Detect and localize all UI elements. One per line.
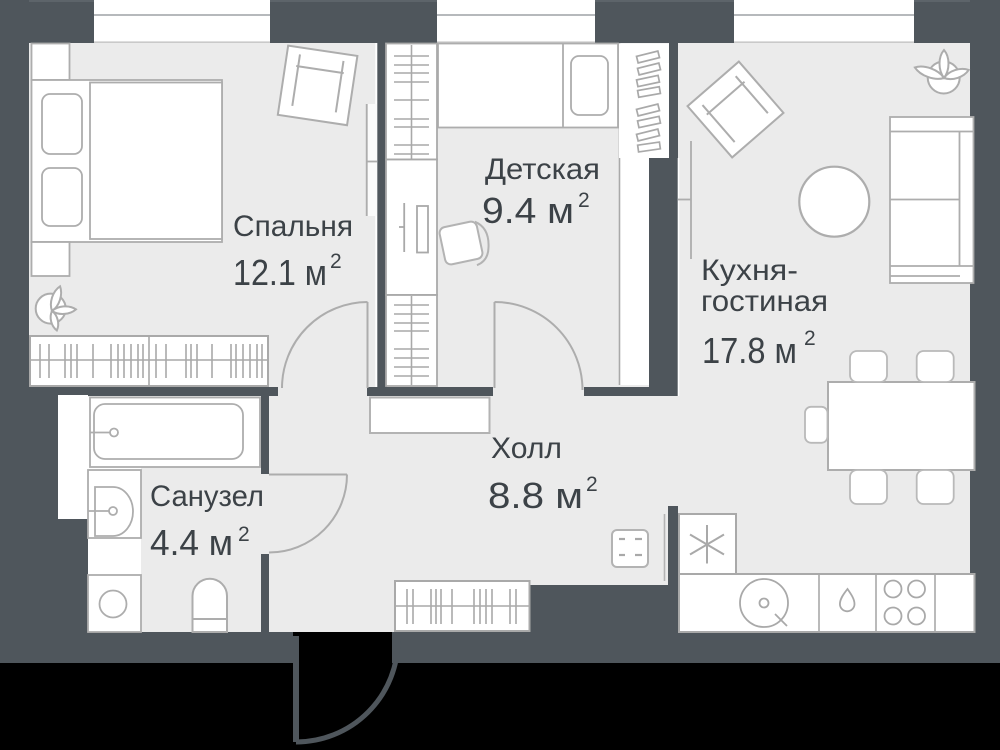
svg-text:2: 2 [238, 523, 250, 546]
svg-text:Детская: Детская [485, 153, 600, 186]
svg-text:9.4 м: 9.4 м [482, 190, 574, 231]
svg-text:2: 2 [578, 189, 590, 212]
svg-text:Холл: Холл [491, 432, 562, 465]
svg-text:8.8 м: 8.8 м [488, 475, 583, 516]
svg-text:17.8 м: 17.8 м [702, 330, 797, 371]
svg-text:гостиная: гостиная [701, 285, 828, 318]
svg-text:Кухня-: Кухня- [701, 254, 798, 287]
svg-text:2: 2 [586, 473, 598, 496]
svg-text:2: 2 [330, 250, 342, 273]
svg-text:Спальня: Спальня [233, 210, 353, 243]
svg-text:2: 2 [804, 327, 816, 350]
svg-text:12.1 м: 12.1 м [233, 252, 327, 293]
svg-text:Санузел: Санузел [150, 480, 264, 513]
svg-text:4.4 м: 4.4 м [150, 522, 233, 563]
